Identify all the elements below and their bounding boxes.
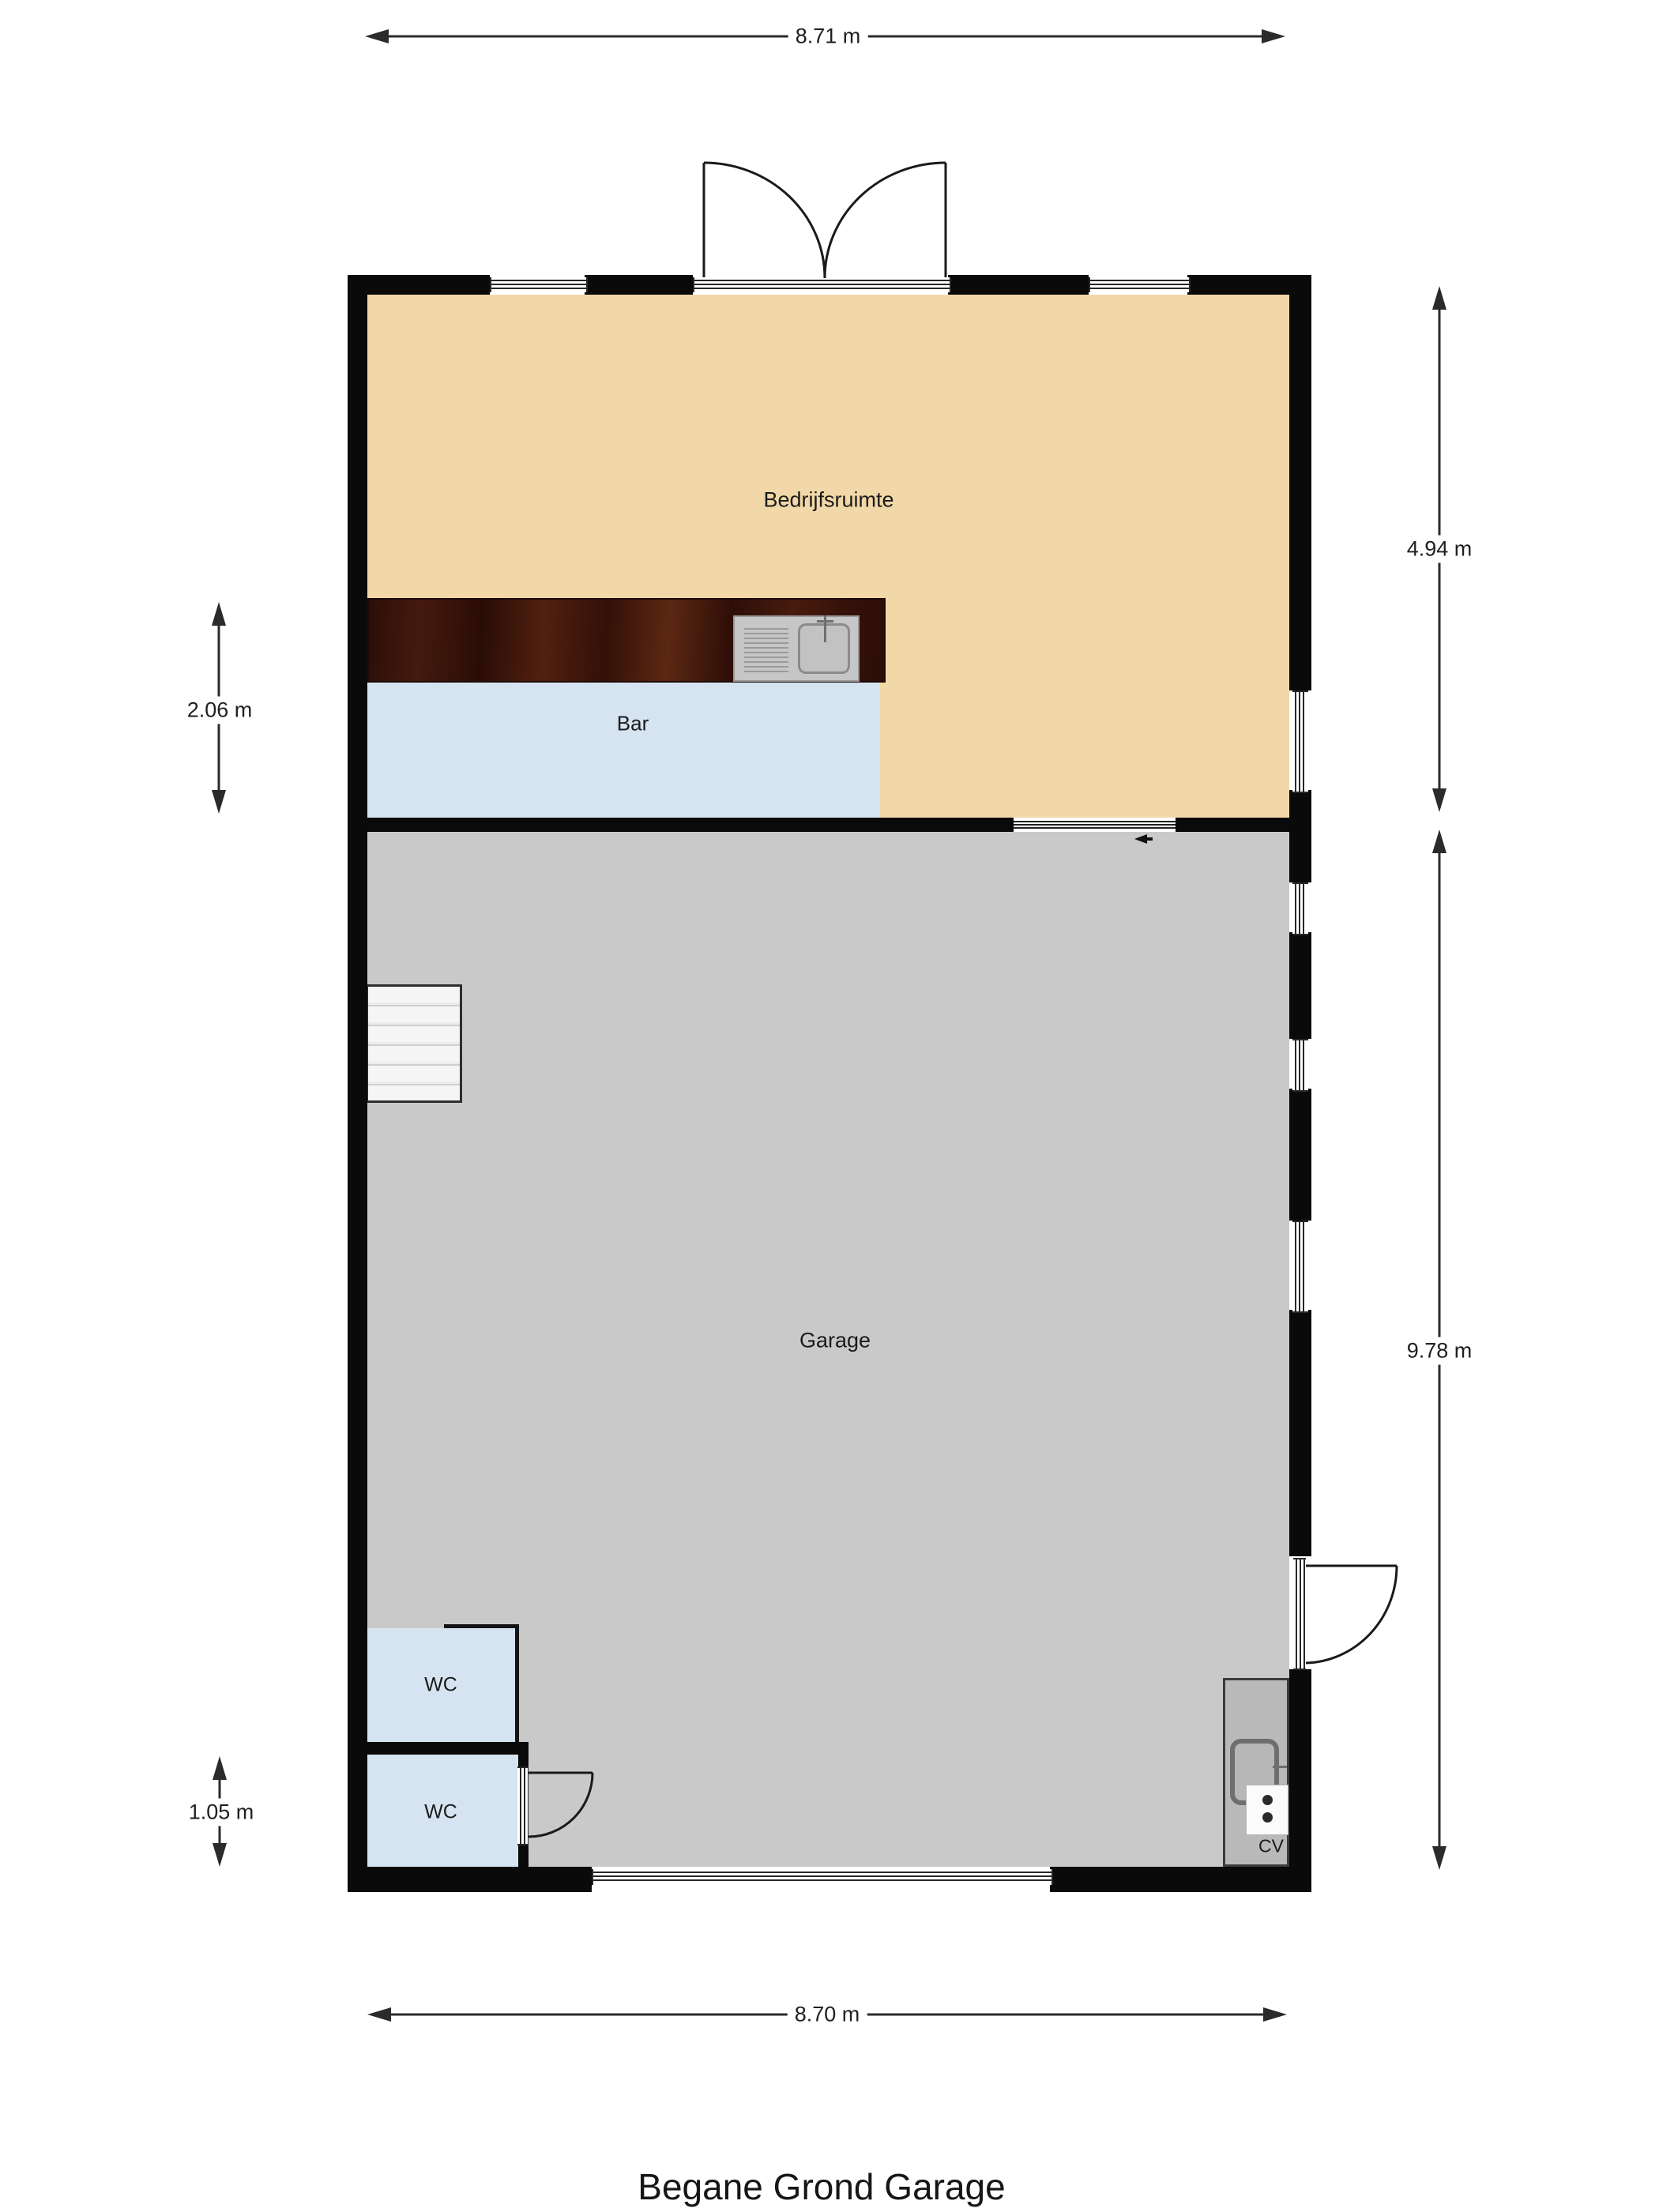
floorplan-page: { "title": "Begane Grond Garage", "rooms…: [0, 0, 1659, 2212]
room-label-cv: CV: [1258, 1836, 1284, 1857]
dim-label-bottom-width: 8.70 m: [788, 2001, 867, 2029]
wc-door-swing: [529, 1773, 592, 1837]
double-door: [704, 163, 946, 278]
room-label-wc-upper: WC: [424, 1674, 457, 1697]
dim-label-bedrijfsruimte-height: 4.94 m: [1400, 536, 1480, 563]
dim-label-garage-height: 9.78 m: [1400, 1337, 1480, 1365]
slide-direction-arrow-icon: [1134, 834, 1153, 844]
dim-label-bar-height: 2.06 m: [180, 697, 260, 724]
room-label-bar: Bar: [617, 712, 649, 736]
plan-annotations-layer: [0, 0, 1659, 2212]
plan-title: Begane Grond Garage: [638, 2165, 1005, 2208]
room-label-wc-lower: WC: [424, 1801, 457, 1824]
dim-label-top-width: 8.71 m: [788, 23, 868, 51]
dim-label-wc-height: 1.05 m: [182, 1799, 261, 1826]
side-door-swing: [1306, 1566, 1397, 1663]
room-label-bedrijfsruimte: Bedrijfsruimte: [763, 488, 893, 513]
room-label-garage: Garage: [799, 1329, 871, 1353]
